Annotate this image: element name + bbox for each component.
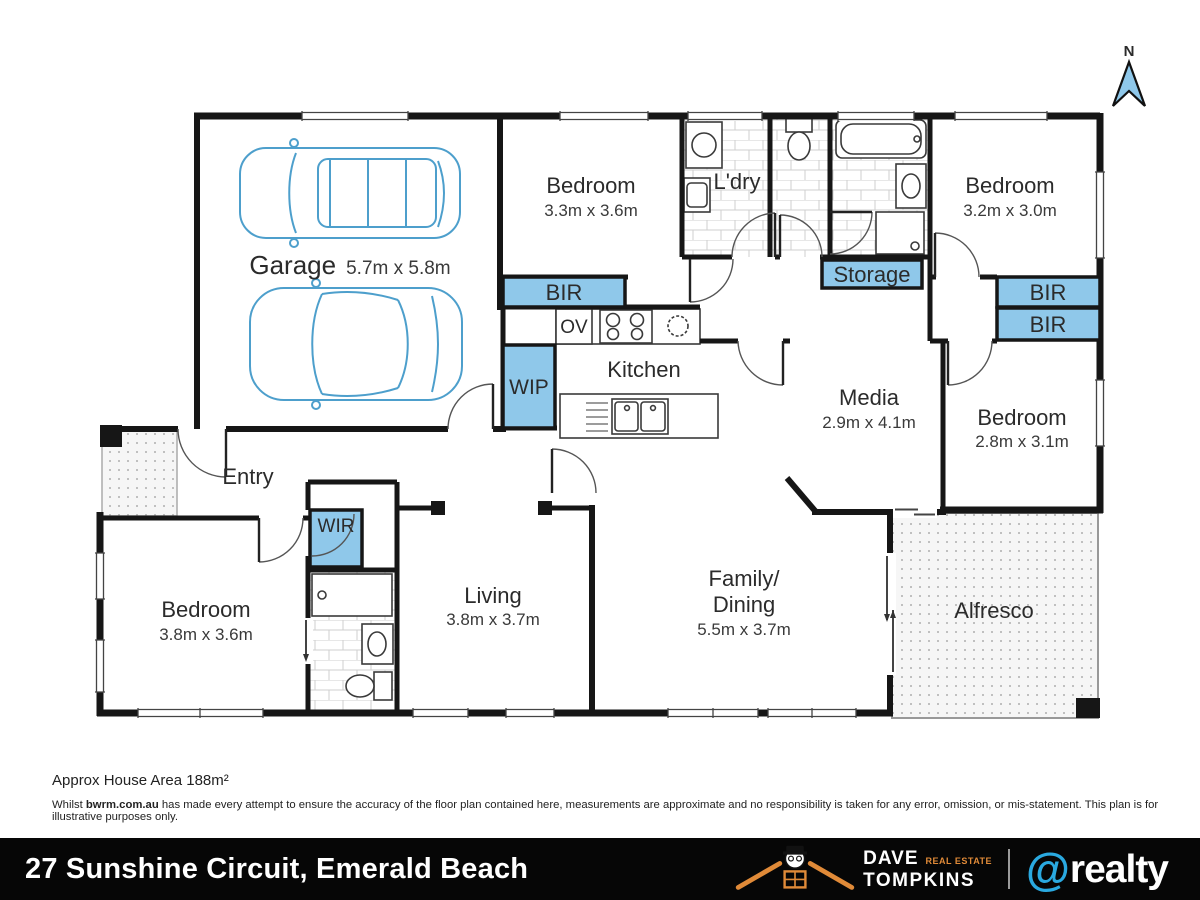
storage-label: Storage <box>833 262 910 287</box>
disclaimer-rest: has made every attempt to ensure the acc… <box>52 799 1158 823</box>
car-sedan <box>250 279 462 409</box>
bir-left-label: BIR <box>546 280 583 305</box>
bir-right-top-label: BIR <box>1030 280 1067 305</box>
kitchen-island <box>560 394 718 438</box>
car-suv <box>240 139 460 247</box>
property-address: 27 Sunshine Circuit, Emerald Beach <box>25 853 528 886</box>
logo-group: DAVE REAL ESTATE TOMPKINS @ realty <box>735 842 1168 896</box>
agency-tagline: REAL ESTATE <box>926 857 993 866</box>
svg-text:3.8m x 3.6m: 3.8m x 3.6m <box>159 625 253 644</box>
disclaimer-site: bwrm.com.au <box>86 799 159 811</box>
room-label-bedroom3: Bedroom <box>965 173 1054 198</box>
at-symbol: @ <box>1026 847 1070 892</box>
at-realty-logo: @ realty <box>1026 847 1168 892</box>
room-label-master-bedroom: Bedroom <box>161 597 250 622</box>
svg-text:2.8m x 3.1m: 2.8m x 3.1m <box>975 432 1069 451</box>
room-label-bedroom2: Bedroom <box>546 173 635 198</box>
floor-plan-drawing: N Garage5.7m x 5.8m Bedroom 3.3m x 3.6m … <box>0 0 1200 838</box>
room-label-family: Family/ <box>709 566 781 591</box>
appliance-symbol <box>668 316 688 336</box>
house-area-text: Approx House Area 188m² <box>52 772 229 789</box>
cooktop <box>600 310 652 343</box>
svg-text:3.8m x 3.7m: 3.8m x 3.7m <box>446 610 540 629</box>
room-label-alfresco: Alfresco <box>954 598 1033 623</box>
disclaimer-text: Whilst bwrm.com.au has made every attemp… <box>52 799 1162 823</box>
agency-name-top: DAVE <box>863 849 918 868</box>
room-label-living: Living <box>464 583 521 608</box>
room-label-kitchen: Kitchen <box>607 357 680 382</box>
logo-separator <box>1008 849 1010 889</box>
svg-text:Dining: Dining <box>713 592 775 617</box>
svg-text:3.2m x 3.0m: 3.2m x 3.0m <box>963 201 1057 220</box>
room-label-media: Media <box>839 385 900 410</box>
oven-label: OV <box>560 317 588 338</box>
wc-toilet <box>786 118 812 160</box>
address-banner: 27 Sunshine Circuit, Emerald Beach DAVE … <box>0 838 1200 900</box>
floor-plan-page: N Garage5.7m x 5.8m Bedroom 3.3m x 3.6m … <box>0 0 1200 900</box>
agency-name-bottom: TOMPKINS <box>863 871 992 890</box>
svg-text:5.5m x 3.7m: 5.5m x 3.7m <box>697 620 791 639</box>
room-label-laundry: L'dry <box>714 169 761 194</box>
dave-tompkins-logo: DAVE REAL ESTATE TOMPKINS <box>735 842 992 896</box>
room-label-bedroom4: Bedroom <box>977 405 1066 430</box>
dave-tompkins-text: DAVE REAL ESTATE TOMPKINS <box>863 849 992 890</box>
svg-text:2.9m x 4.1m: 2.9m x 4.1m <box>822 413 916 432</box>
realty-name: realty <box>1070 850 1168 889</box>
north-arrow-icon: N <box>1113 43 1145 106</box>
wir-label: WIR <box>318 516 355 537</box>
room-label-entry: Entry <box>222 464 273 489</box>
room-label-garage: Garage5.7m x 5.8m <box>249 250 450 280</box>
disclaimer-prefix: Whilst <box>52 799 86 811</box>
bir-right-bottom-label: BIR <box>1030 312 1067 337</box>
wip-label: WIP <box>509 376 549 399</box>
dave-tompkins-icon <box>735 842 855 896</box>
svg-text:3.3m x 3.6m: 3.3m x 3.6m <box>544 201 638 220</box>
north-label: N <box>1124 43 1135 60</box>
